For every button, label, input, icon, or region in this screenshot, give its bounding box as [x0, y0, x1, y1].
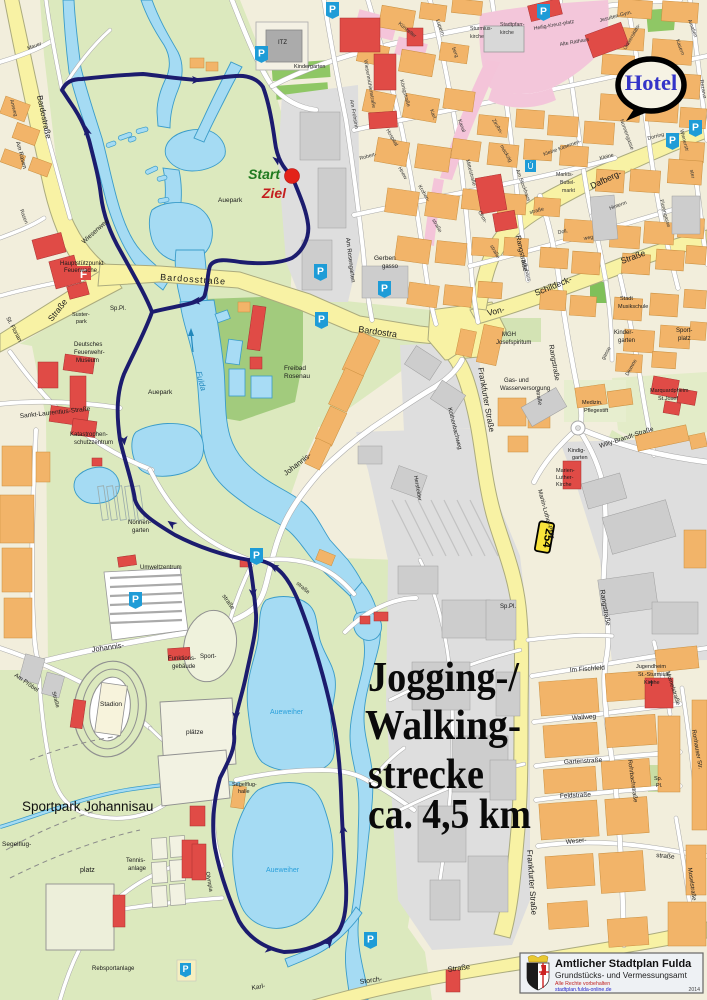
- svg-text:Stadion: Stadion: [100, 701, 122, 708]
- svg-text:Josefspiritum: Josefspiritum: [496, 340, 531, 346]
- svg-text:park: park: [76, 319, 87, 325]
- svg-text:garten: garten: [572, 455, 588, 461]
- svg-text:Pflegestift: Pflegestift: [584, 408, 609, 414]
- svg-text:gebäude: gebäude: [172, 664, 196, 670]
- svg-text:P: P: [253, 551, 260, 562]
- svg-text:P: P: [692, 123, 699, 134]
- svg-text:P: P: [258, 49, 265, 60]
- svg-text:Wasserversorgung: Wasserversorgung: [500, 386, 550, 392]
- svg-text:Musikschule: Musikschule: [618, 304, 648, 310]
- svg-text:Suster-: Suster-: [72, 312, 90, 318]
- svg-text:Ziel: Ziel: [261, 185, 287, 201]
- svg-text:P: P: [132, 595, 139, 606]
- svg-text:Feuerwehr-: Feuerwehr-: [74, 350, 105, 356]
- svg-text:Feuerwache: Feuerwache: [64, 268, 98, 274]
- svg-text:plätze: plätze: [186, 729, 204, 736]
- svg-text:P: P: [329, 5, 336, 16]
- svg-text:Stadt: Stadt: [620, 296, 633, 302]
- svg-text:St.Josef: St.Josef: [658, 396, 678, 402]
- svg-text:Marien-: Marien-: [556, 468, 575, 474]
- svg-text:markt: markt: [562, 188, 576, 194]
- svg-text:Aueweiher: Aueweiher: [266, 867, 300, 874]
- svg-text:Hotel: Hotel: [625, 70, 677, 95]
- svg-text:P: P: [540, 7, 547, 18]
- svg-text:halle: halle: [238, 789, 250, 795]
- svg-text:Kindergarten: Kindergarten: [294, 64, 326, 70]
- svg-text:Jogging-/: Jogging-/: [368, 655, 520, 701]
- svg-text:Auepark: Auepark: [218, 197, 243, 204]
- svg-text:Sturmius-: Sturmius-: [470, 26, 492, 32]
- svg-text:platz: platz: [80, 867, 95, 874]
- svg-text:kirche: kirche: [500, 30, 514, 36]
- svg-text:Funktions-: Funktions-: [168, 656, 196, 662]
- svg-text:Sportpark Johannisau: Sportpark Johannisau: [22, 799, 153, 814]
- svg-text:Kinder-: Kinder-: [614, 330, 633, 336]
- svg-text:Sport-: Sport-: [676, 328, 692, 334]
- svg-text:P: P: [669, 136, 676, 147]
- svg-text:garten: garten: [618, 338, 635, 344]
- svg-text:Sp.Pl.: Sp.Pl.: [110, 306, 126, 312]
- svg-text:Hauptstützpunkt: Hauptstützpunkt: [60, 261, 104, 267]
- svg-text:Grundstücks- und Vermessungsam: Grundstücks- und Vermessungsamt: [555, 970, 688, 980]
- svg-text:Walking-: Walking-: [365, 703, 521, 749]
- svg-text:anlage: anlage: [128, 866, 147, 872]
- svg-text:kirche: kirche: [470, 34, 484, 40]
- svg-text:ITZ: ITZ: [278, 40, 287, 46]
- svg-text:Segelflug-: Segelflug-: [232, 782, 257, 788]
- svg-text:Museum: Museum: [76, 358, 99, 364]
- svg-text:P: P: [381, 284, 388, 295]
- svg-text:schutzzentrum: schutzzentrum: [74, 440, 113, 446]
- svg-text:Kirche: Kirche: [556, 482, 572, 488]
- svg-text:Marquardpheim: Marquardpheim: [650, 388, 689, 394]
- svg-text:Markts-: Markts-: [556, 172, 574, 178]
- svg-text:gasso: gasso: [382, 264, 399, 270]
- svg-text:Tennis-: Tennis-: [126, 858, 145, 864]
- svg-text:Jugendheim: Jugendheim: [636, 664, 666, 670]
- svg-text:Start: Start: [248, 166, 281, 182]
- svg-text:garten: garten: [132, 528, 149, 534]
- svg-text:Amtlicher Stadtplan Fulda: Amtlicher Stadtplan Fulda: [555, 958, 692, 970]
- svg-text:Pl.: Pl.: [656, 783, 663, 789]
- svg-text:Katastrophen-: Katastrophen-: [70, 432, 108, 438]
- svg-text:Sport-: Sport-: [200, 654, 216, 660]
- svg-text:Kindig-: Kindig-: [568, 448, 585, 454]
- svg-text:Gerben: Gerben: [374, 255, 396, 262]
- svg-text:✝: ✝: [648, 679, 655, 688]
- svg-text:Deutsches: Deutsches: [74, 342, 102, 348]
- svg-text:Medizin.: Medizin.: [582, 400, 603, 406]
- svg-text:Freibad: Freibad: [284, 365, 306, 372]
- svg-text:Ú: Ú: [528, 162, 534, 171]
- svg-text:MGH: MGH: [502, 332, 516, 338]
- svg-text:ca. 4,5 km: ca. 4,5 km: [368, 792, 531, 838]
- svg-text:P: P: [367, 935, 374, 946]
- svg-text:Stadtpfarr-: Stadtpfarr-: [500, 22, 525, 28]
- svg-text:St.-Sturmius-: St.-Sturmius-: [638, 672, 670, 678]
- svg-text:Luther-: Luther-: [556, 475, 574, 481]
- svg-text:Segelflug-: Segelflug-: [2, 841, 31, 848]
- svg-text:stadtplan.fulda-online.de: stadtplan.fulda-online.de: [555, 987, 612, 993]
- svg-text:2014: 2014: [688, 987, 700, 993]
- svg-text:Rebsportanlage: Rebsportanlage: [92, 966, 135, 972]
- svg-text:Auepark: Auepark: [148, 389, 173, 396]
- svg-text:P: P: [318, 315, 325, 326]
- svg-text:Rosenau: Rosenau: [284, 373, 310, 380]
- svg-text:Sp.: Sp.: [654, 776, 663, 782]
- svg-text:Buttel-: Buttel-: [560, 180, 575, 186]
- svg-text:Gas- und: Gas- und: [504, 378, 529, 384]
- svg-text:Nonnen-: Nonnen-: [128, 520, 151, 526]
- svg-text:Aueweiher: Aueweiher: [270, 709, 304, 716]
- svg-text:P: P: [317, 267, 324, 278]
- svg-text:platz: platz: [678, 336, 691, 342]
- svg-text:Umweltzentrum: Umweltzentrum: [140, 565, 182, 571]
- svg-text:Sp.Pl.: Sp.Pl.: [500, 604, 516, 610]
- svg-text:P: P: [183, 964, 189, 974]
